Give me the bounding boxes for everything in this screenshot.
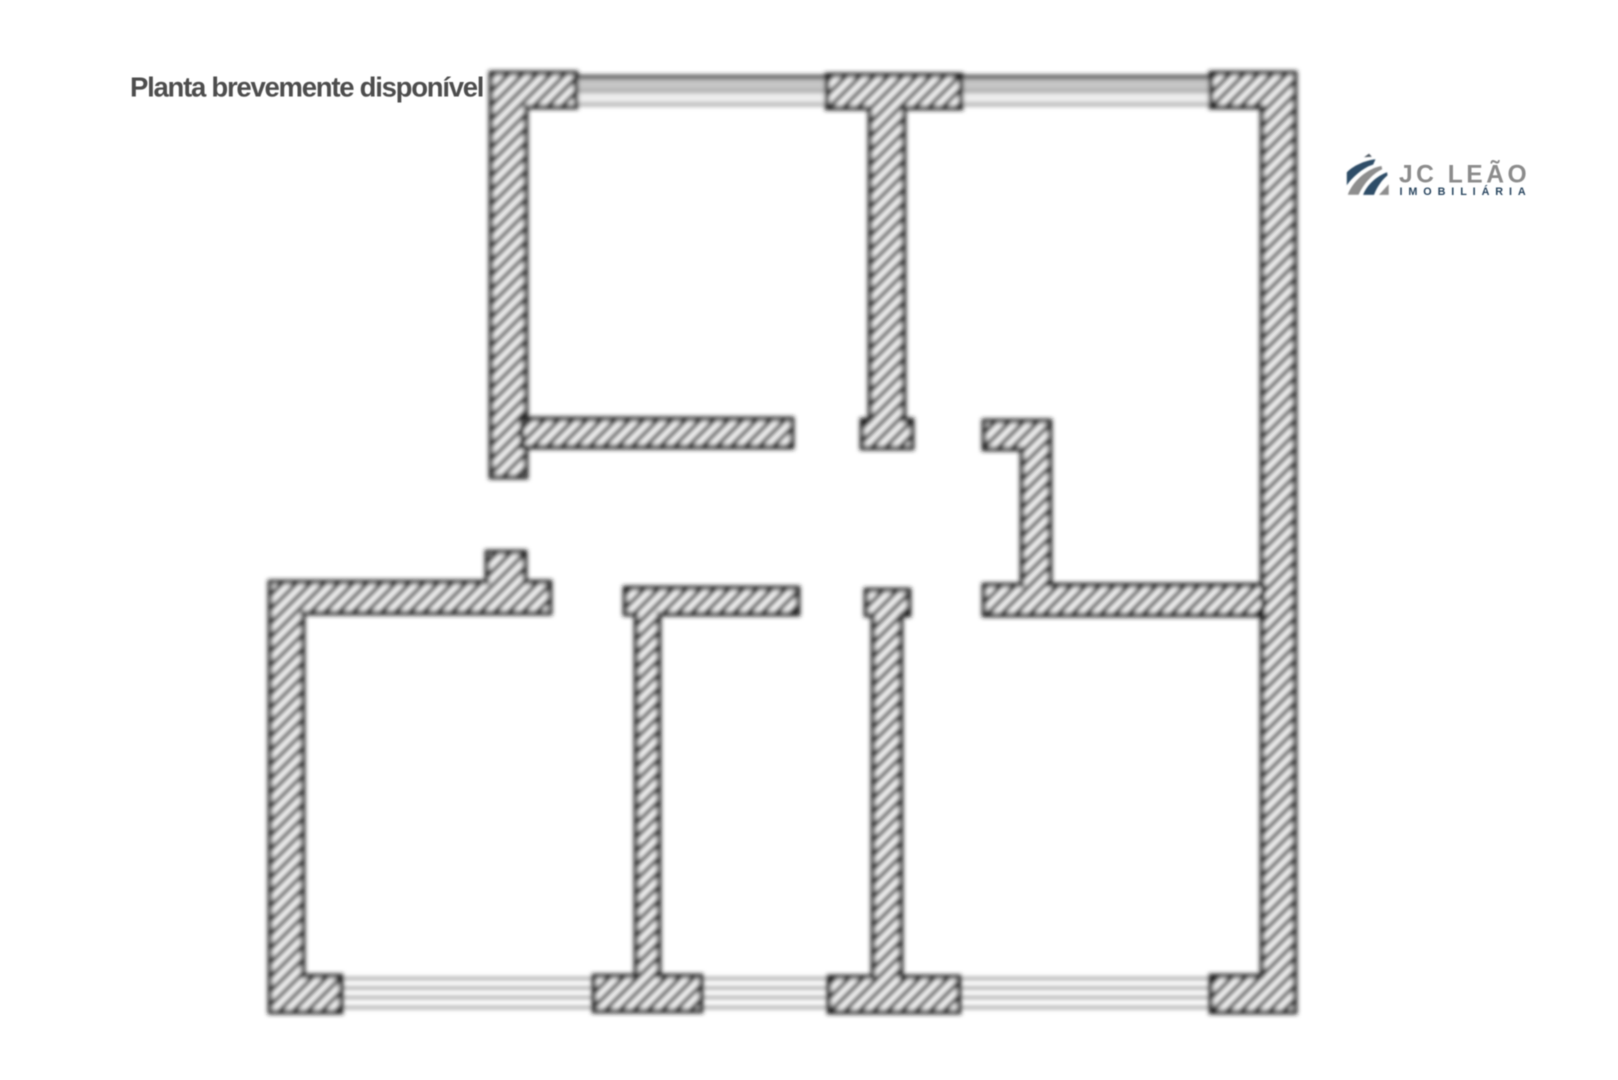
svg-text:Planta brevemente disponível: Planta brevemente disponível (130, 72, 483, 103)
svg-text:IMOBILIÁRIA: IMOBILIÁRIA (1400, 185, 1532, 198)
svg-text:JC LEÃO: JC LEÃO (1399, 161, 1530, 189)
